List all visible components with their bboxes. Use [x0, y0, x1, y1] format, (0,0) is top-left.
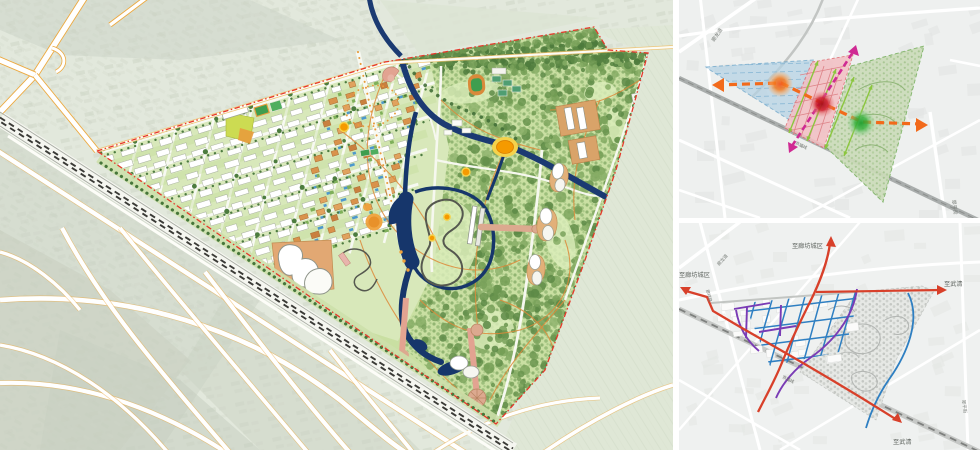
svg-text:至武清: 至武清	[893, 438, 912, 446]
svg-text:至廊坊城区: 至廊坊城区	[792, 242, 823, 250]
svg-text:至武清: 至武清	[944, 280, 963, 288]
svg-text:至廊坊城区: 至廊坊城区	[679, 271, 710, 279]
